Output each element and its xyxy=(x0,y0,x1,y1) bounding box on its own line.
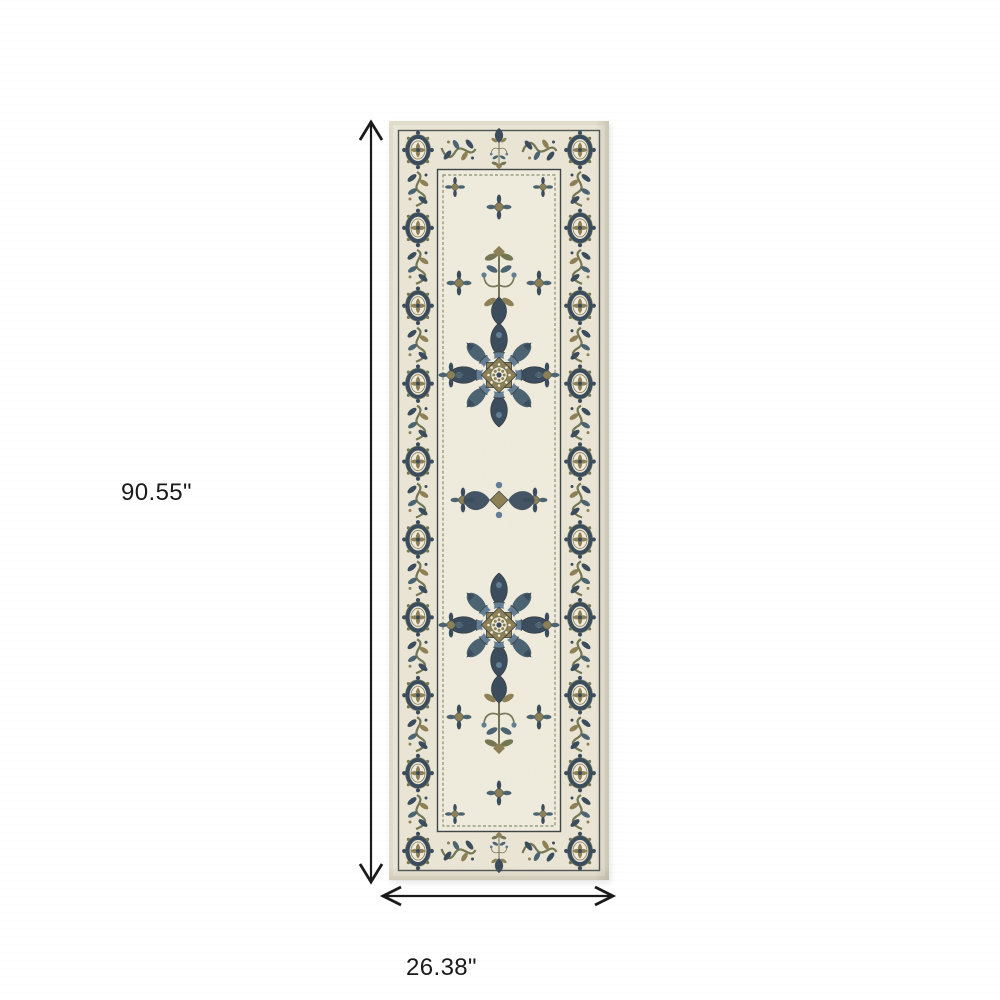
product-dimension-image: 90.55" 26.38" xyxy=(0,0,1000,1000)
height-measure-arrow-icon xyxy=(356,117,386,887)
width-measure-arrow-icon xyxy=(378,883,618,909)
width-dimension-label: 26.38" xyxy=(406,956,477,980)
rug-pattern-graphic xyxy=(389,121,609,880)
height-dimension-label: 90.55" xyxy=(121,481,192,505)
rug-runner-image xyxy=(389,121,609,880)
